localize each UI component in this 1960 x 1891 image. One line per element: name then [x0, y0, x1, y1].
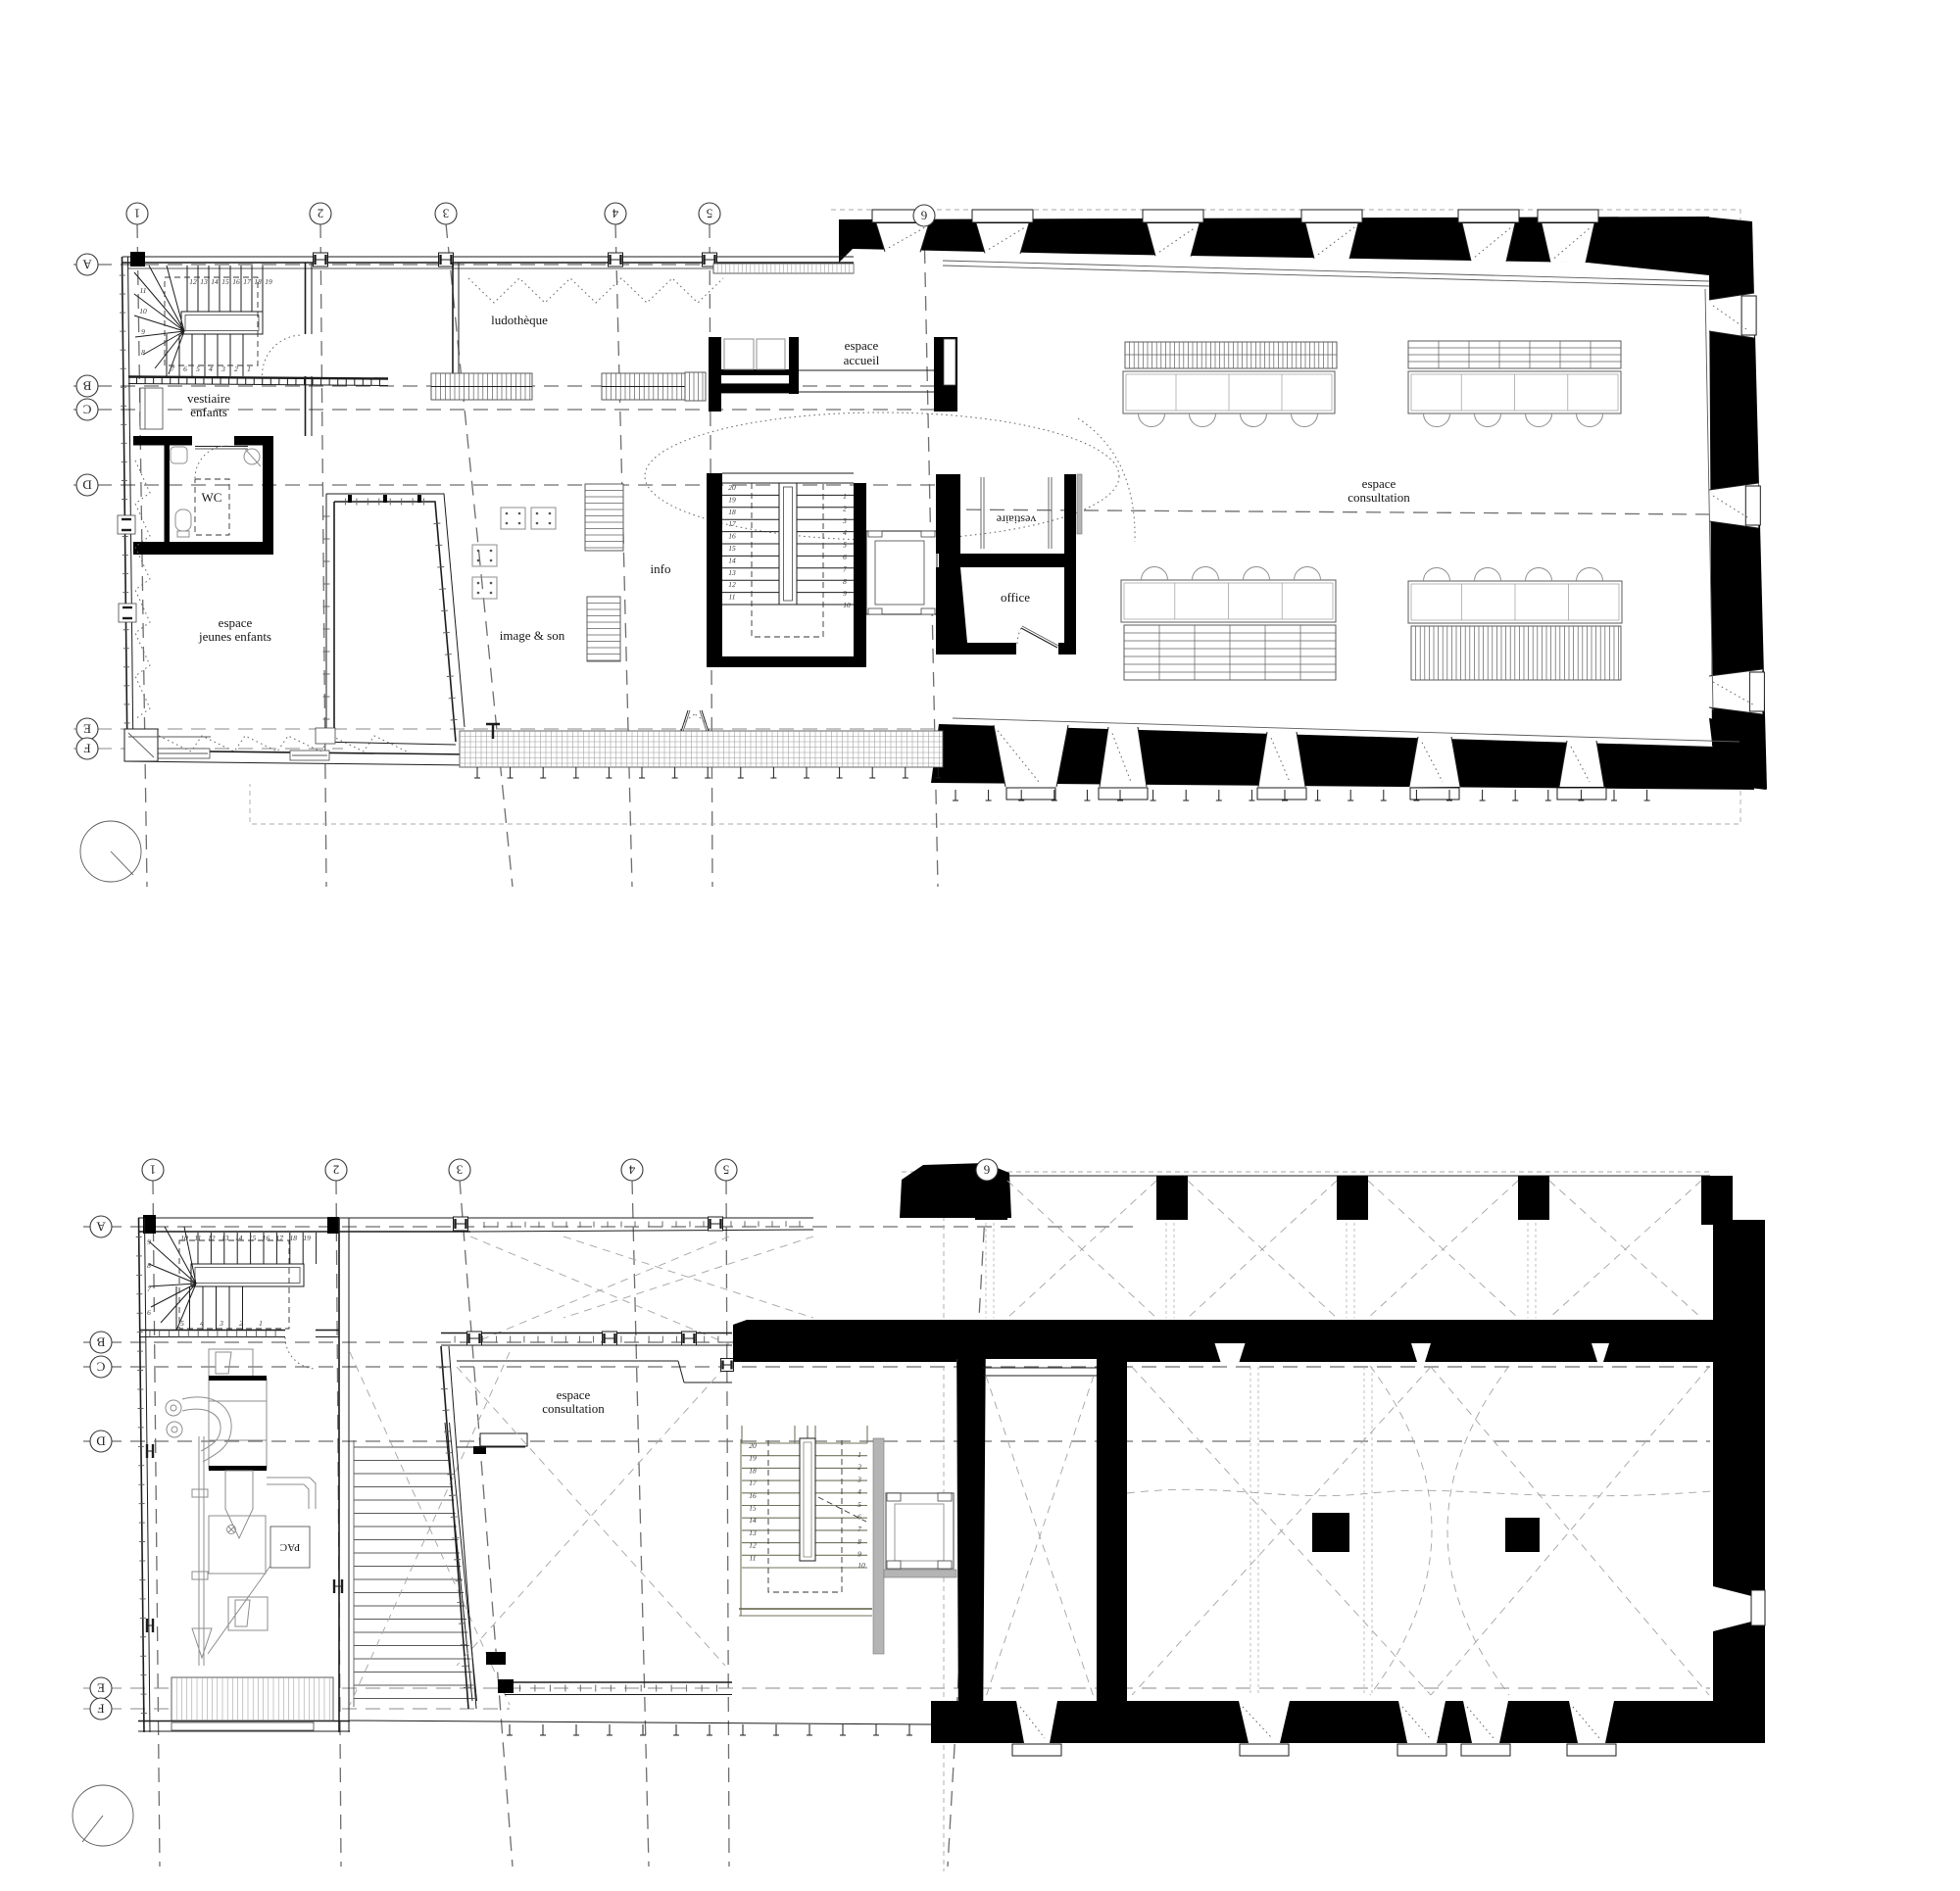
svg-text:4: 4 [200, 1319, 204, 1328]
svg-text:17: 17 [728, 519, 736, 528]
svg-text:F: F [97, 1702, 104, 1717]
svg-text:11: 11 [194, 1234, 201, 1242]
svg-text:4: 4 [209, 364, 213, 373]
svg-text:consultation: consultation [542, 1401, 605, 1416]
svg-text:12: 12 [208, 1234, 216, 1242]
svg-text:2: 2 [843, 504, 847, 512]
svg-text:6: 6 [857, 1513, 861, 1522]
svg-text:19: 19 [728, 495, 736, 504]
svg-text:3: 3 [443, 207, 450, 221]
svg-text:A: A [96, 1220, 106, 1235]
svg-text:19: 19 [303, 1234, 311, 1242]
svg-text:D: D [82, 478, 91, 493]
svg-text:18: 18 [728, 508, 736, 516]
svg-text:8: 8 [843, 577, 847, 586]
svg-text:jeunes enfants: jeunes enfants [198, 629, 271, 644]
svg-text:8: 8 [857, 1537, 861, 1546]
svg-text:6: 6 [843, 553, 847, 561]
svg-text:WC: WC [202, 490, 222, 505]
svg-text:6: 6 [983, 1163, 990, 1178]
svg-text:3: 3 [842, 516, 847, 525]
svg-text:C: C [97, 1360, 106, 1375]
svg-text:7: 7 [843, 564, 847, 573]
svg-text:vestiaire: vestiaire [187, 391, 230, 406]
svg-text:15: 15 [221, 277, 229, 286]
svg-text:16: 16 [263, 1234, 270, 1242]
svg-text:1: 1 [843, 492, 847, 501]
svg-text:11: 11 [750, 1553, 757, 1562]
svg-text:D: D [96, 1434, 105, 1449]
svg-text:6: 6 [147, 1308, 151, 1317]
svg-text:14: 14 [728, 556, 736, 564]
svg-text:4: 4 [857, 1487, 861, 1496]
svg-text:15: 15 [249, 1234, 257, 1242]
svg-text:PAC: PAC [280, 1541, 300, 1553]
svg-text:1: 1 [150, 1163, 157, 1178]
svg-text:2: 2 [333, 1163, 340, 1178]
svg-text:A: A [82, 258, 92, 272]
svg-text:18: 18 [289, 1234, 297, 1242]
svg-text:12: 12 [728, 580, 736, 589]
svg-text:C: C [83, 403, 92, 417]
svg-text:5: 5 [196, 364, 200, 373]
svg-text:19: 19 [265, 277, 272, 286]
svg-text:7: 7 [171, 364, 174, 373]
svg-text:18: 18 [254, 277, 262, 286]
svg-text:15: 15 [728, 544, 736, 553]
svg-text:image & son: image & son [500, 628, 565, 643]
svg-text:4: 4 [612, 207, 618, 221]
svg-text:office: office [1001, 590, 1030, 605]
svg-text:consultation: consultation [1347, 490, 1410, 505]
svg-text:8: 8 [147, 1261, 151, 1270]
svg-text:info: info [651, 561, 671, 576]
svg-text:12: 12 [749, 1541, 757, 1550]
svg-text:12: 12 [189, 277, 197, 286]
svg-text:espace: espace [557, 1387, 591, 1402]
svg-text:17: 17 [749, 1479, 757, 1487]
svg-text:2: 2 [318, 207, 324, 221]
svg-text:10: 10 [139, 307, 147, 315]
svg-text:16: 16 [232, 277, 240, 286]
svg-text:16: 16 [728, 532, 736, 541]
svg-text:B: B [82, 379, 91, 394]
svg-text:18: 18 [749, 1466, 757, 1475]
svg-text:9: 9 [141, 327, 145, 336]
svg-text:10: 10 [857, 1561, 865, 1570]
svg-text:3: 3 [457, 1163, 464, 1178]
svg-text:9: 9 [843, 589, 847, 598]
svg-text:4: 4 [628, 1163, 635, 1178]
svg-text:7: 7 [147, 1285, 151, 1293]
svg-text:F: F [83, 742, 90, 756]
svg-text:4: 4 [843, 528, 847, 537]
svg-text:espace: espace [1362, 476, 1396, 491]
svg-text:13: 13 [200, 277, 208, 286]
svg-text:2: 2 [239, 1319, 243, 1328]
svg-text:5: 5 [707, 207, 713, 221]
svg-text:5: 5 [857, 1500, 861, 1509]
svg-text:19: 19 [749, 1454, 757, 1463]
svg-text:1: 1 [857, 1450, 861, 1459]
svg-text:20: 20 [728, 483, 736, 492]
svg-text:5: 5 [843, 541, 847, 550]
svg-text:6: 6 [920, 209, 927, 223]
svg-text:9: 9 [147, 1237, 151, 1246]
svg-text:1: 1 [259, 1319, 263, 1328]
svg-text:10: 10 [180, 1234, 188, 1242]
svg-text:11: 11 [140, 286, 147, 295]
svg-text:espace: espace [219, 615, 253, 630]
svg-text:2: 2 [857, 1463, 861, 1472]
svg-text:17: 17 [276, 1234, 284, 1242]
svg-text:1: 1 [134, 207, 141, 221]
svg-text:3: 3 [220, 364, 225, 373]
svg-text:7: 7 [857, 1525, 861, 1533]
svg-text:E: E [83, 722, 91, 737]
svg-text:13: 13 [221, 1234, 229, 1242]
svg-text:espace: espace [845, 338, 879, 353]
svg-text:enfants: enfants [190, 405, 227, 419]
svg-text:9: 9 [857, 1550, 861, 1559]
svg-text:14: 14 [749, 1516, 757, 1525]
svg-text:11: 11 [729, 593, 736, 602]
svg-text:14: 14 [235, 1234, 243, 1242]
svg-text:accueil: accueil [844, 353, 880, 367]
svg-text:ludothèque: ludothèque [491, 313, 548, 327]
svg-text:1: 1 [247, 364, 251, 373]
svg-text:10: 10 [843, 601, 851, 609]
svg-text:14: 14 [211, 277, 219, 286]
svg-text:13: 13 [728, 568, 736, 577]
svg-text:6: 6 [183, 364, 187, 373]
svg-text:E: E [97, 1681, 105, 1696]
svg-text:3: 3 [219, 1319, 223, 1328]
svg-text:20: 20 [749, 1441, 757, 1450]
svg-text:13: 13 [749, 1528, 757, 1537]
svg-text:vestiaire: vestiaire [997, 512, 1037, 526]
svg-text:5: 5 [723, 1163, 730, 1178]
svg-text:3: 3 [857, 1475, 861, 1483]
svg-text:B: B [96, 1335, 105, 1350]
svg-text:8: 8 [141, 348, 145, 357]
svg-text:15: 15 [749, 1504, 757, 1513]
svg-text:17: 17 [243, 277, 251, 286]
svg-text:16: 16 [749, 1491, 757, 1500]
svg-text:2: 2 [234, 364, 238, 373]
svg-text:5: 5 [180, 1319, 184, 1328]
